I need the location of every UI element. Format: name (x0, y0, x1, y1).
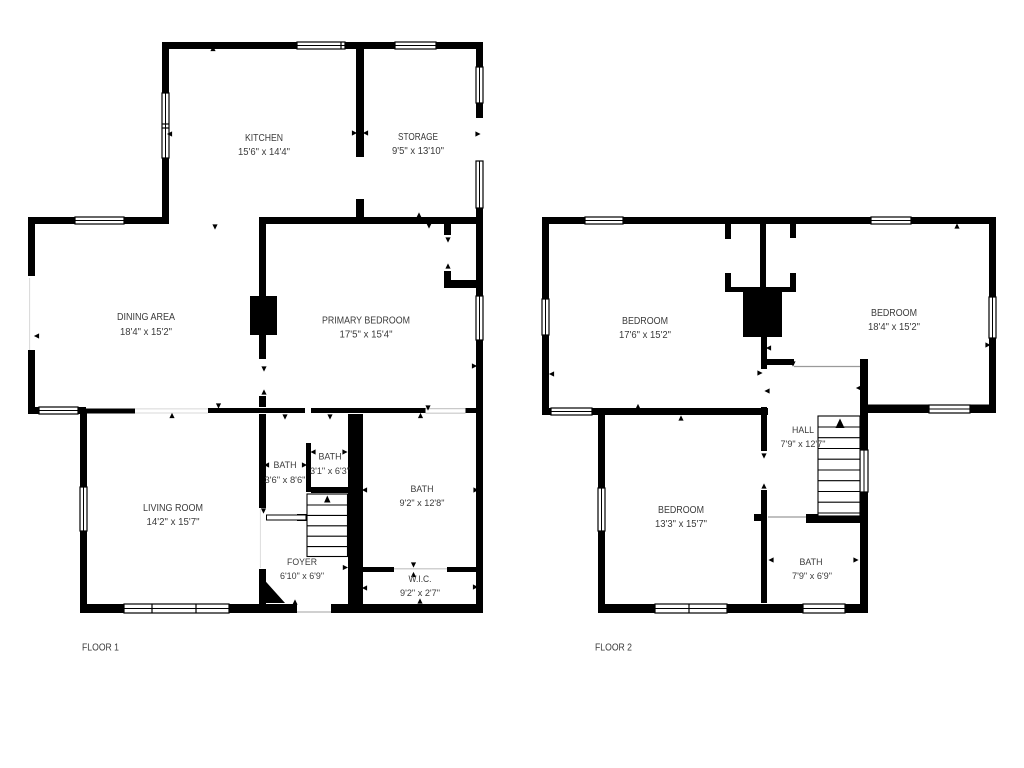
svg-text:3'6" x 8'6": 3'6" x 8'6" (265, 475, 306, 485)
svg-text:6'10" x 6'9": 6'10" x 6'9" (280, 571, 324, 581)
svg-text:18'4" x 15'2": 18'4" x 15'2" (120, 327, 172, 338)
svg-text:LIVING ROOM: LIVING ROOM (143, 503, 203, 514)
svg-text:15'6" x 14'4": 15'6" x 14'4" (238, 147, 290, 158)
svg-text:KITCHEN: KITCHEN (245, 133, 283, 144)
svg-text:HALL: HALL (792, 425, 814, 435)
svg-text:13'3" x 15'7": 13'3" x 15'7" (655, 519, 707, 530)
svg-text:17'6" x 15'2": 17'6" x 15'2" (619, 330, 671, 341)
svg-text:BATH: BATH (411, 484, 434, 494)
svg-text:FOYER: FOYER (287, 557, 317, 567)
svg-text:BATH: BATH (274, 460, 297, 470)
svg-text:18'4" x 15'2": 18'4" x 15'2" (868, 322, 920, 333)
svg-text:14'2" x 15'7": 14'2" x 15'7" (147, 517, 200, 528)
svg-text:9'2" x 2'7": 9'2" x 2'7" (400, 588, 440, 598)
svg-text:PRIMARY BEDROOM: PRIMARY BEDROOM (322, 316, 410, 327)
svg-text:STORAGE: STORAGE (398, 132, 438, 143)
svg-text:BATH: BATH (800, 557, 823, 567)
svg-text:9'2" x 12'8": 9'2" x 12'8" (400, 498, 445, 508)
svg-text:BATH: BATH (319, 452, 342, 462)
svg-text:BEDROOM: BEDROOM (871, 308, 917, 319)
svg-text:7'9" x 6'9": 7'9" x 6'9" (792, 571, 832, 581)
svg-text:FLOOR 2: FLOOR 2 (595, 643, 632, 654)
svg-text:17'5" x 15'4": 17'5" x 15'4" (340, 330, 393, 341)
svg-text:BEDROOM: BEDROOM (622, 316, 668, 327)
svg-text:3'1" x 6'3": 3'1" x 6'3" (310, 466, 350, 476)
svg-text:FLOOR 1: FLOOR 1 (82, 643, 119, 654)
svg-text:W.I.C.: W.I.C. (409, 574, 432, 584)
svg-text:9'5" x 13'10": 9'5" x 13'10" (392, 146, 444, 157)
svg-text:BEDROOM: BEDROOM (658, 505, 704, 516)
svg-text:DINING AREA: DINING AREA (117, 312, 175, 323)
svg-text:7'9" x 12'7": 7'9" x 12'7" (781, 439, 826, 449)
